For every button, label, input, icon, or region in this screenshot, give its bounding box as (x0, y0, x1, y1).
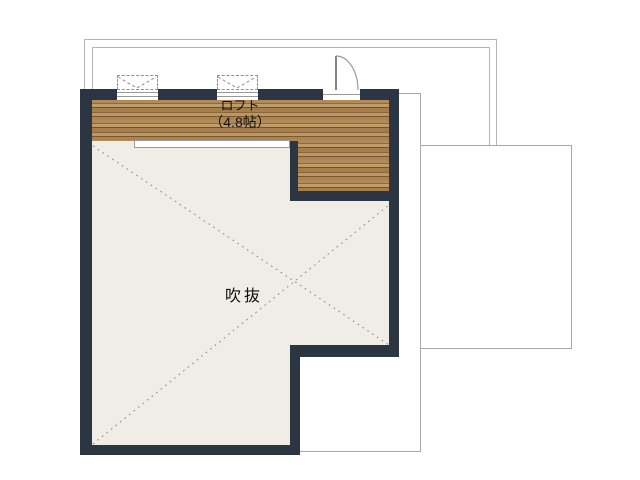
void-label: 吹抜 (199, 282, 289, 306)
door-opening (323, 89, 360, 100)
wall-left (80, 89, 92, 455)
wall-bottom (80, 445, 298, 455)
window-opening-1 (117, 89, 158, 100)
loft-label-size: （4.8帖） (175, 114, 305, 131)
lower-floor-room-outline (420, 145, 572, 349)
wall-right (389, 89, 399, 357)
loft-label-name: ロフト (175, 97, 305, 114)
window-symbol-1 (117, 75, 158, 90)
loft-railing (134, 140, 290, 148)
void-floor-right (290, 195, 389, 350)
wall-notch-vertical (290, 345, 300, 455)
wall-notch-horizontal (290, 345, 399, 357)
lower-floor-outline-top (399, 93, 420, 94)
lower-floor-outline-bottom (298, 451, 421, 452)
wall-loft-bottom-band (290, 191, 399, 201)
window-symbol-2 (217, 75, 258, 90)
floor-plan-canvas: ロフト （4.8帖） 吹抜 (0, 0, 640, 480)
loft-label: ロフト （4.8帖） (175, 97, 305, 131)
